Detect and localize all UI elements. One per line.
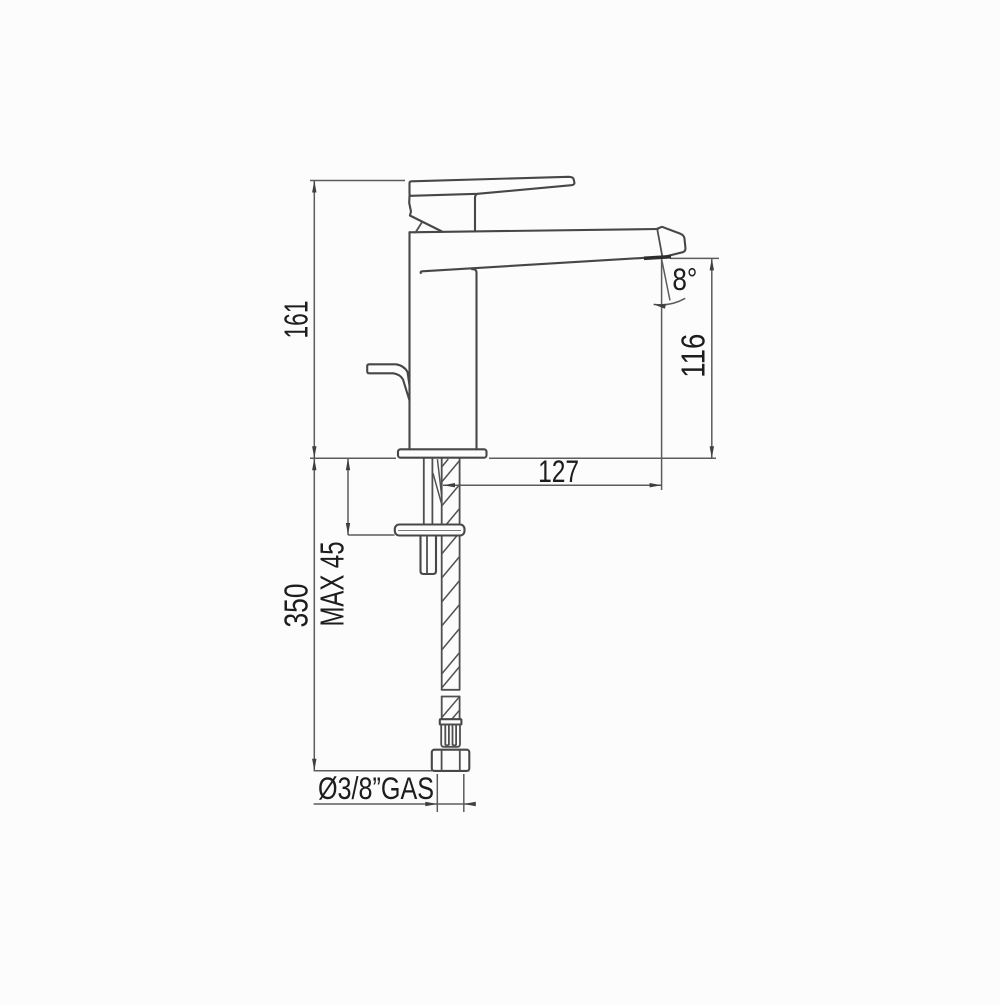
svg-text:350: 350 bbox=[277, 584, 314, 628]
svg-text:8°: 8° bbox=[672, 261, 697, 297]
svg-text:MAX 45: MAX 45 bbox=[314, 542, 351, 627]
svg-text:Ø3/8”GAS: Ø3/8”GAS bbox=[318, 770, 434, 806]
svg-text:161: 161 bbox=[278, 301, 315, 339]
svg-text:127: 127 bbox=[538, 453, 579, 489]
svg-text:116: 116 bbox=[674, 334, 711, 378]
